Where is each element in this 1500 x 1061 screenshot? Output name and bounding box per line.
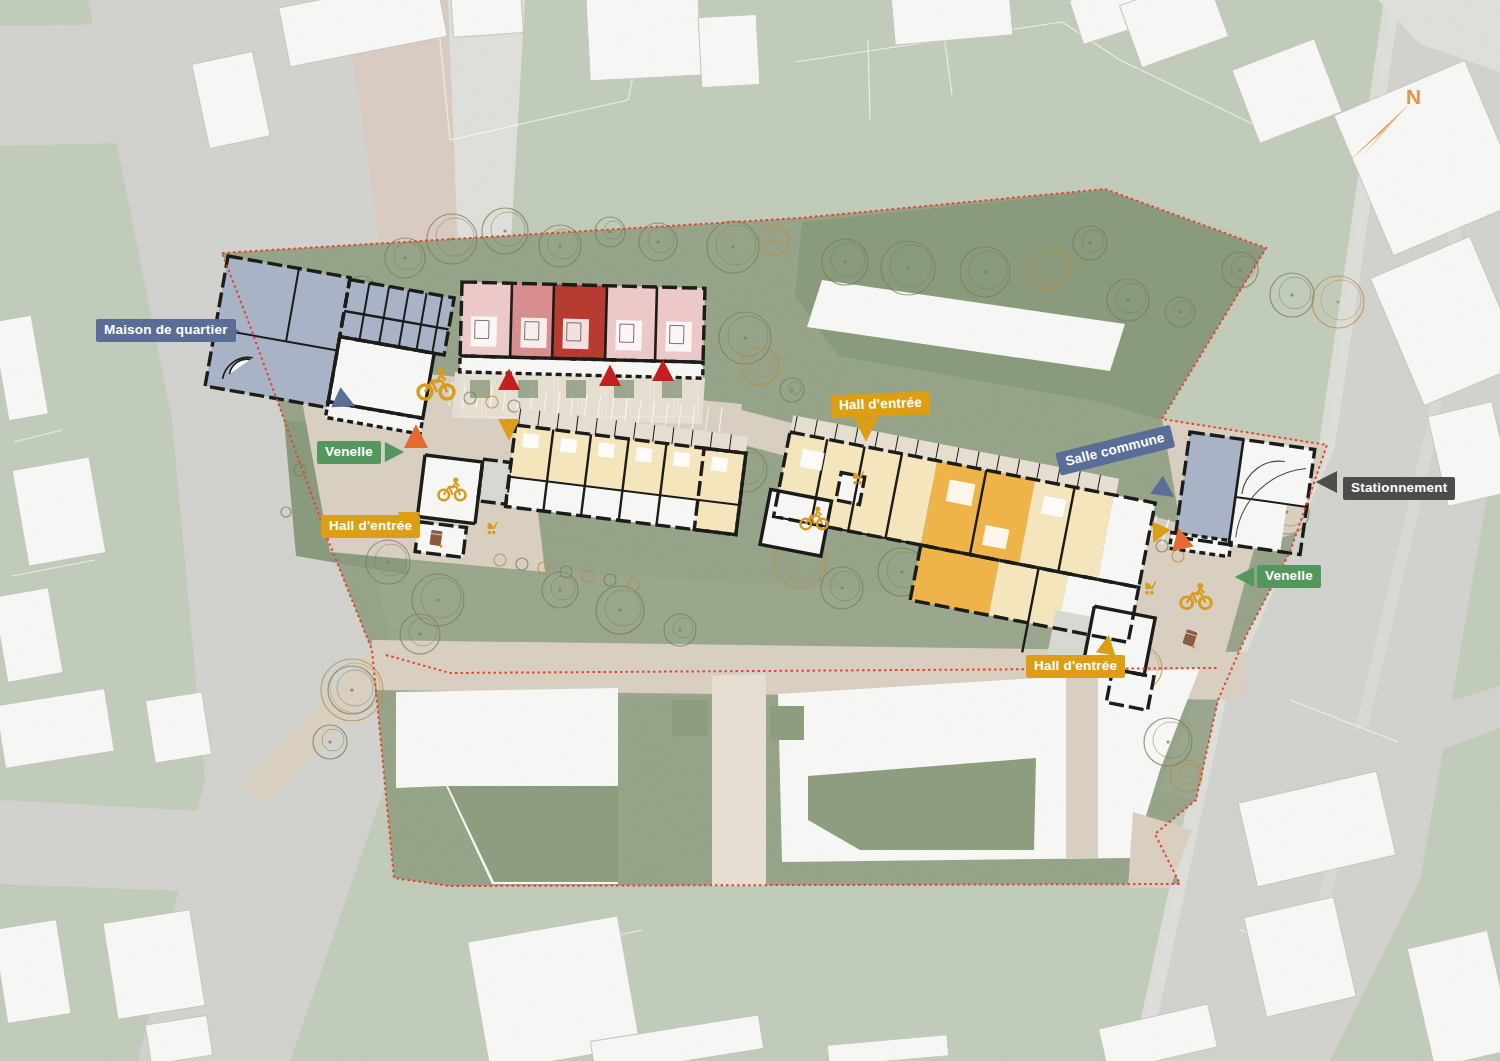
north-label: N [1406, 86, 1421, 107]
label-venelle-left: Venelle [317, 441, 381, 464]
label-hall-entree-left: Hall d'entrée [321, 515, 420, 538]
label-hall-entree-top: Hall d'entrée [831, 392, 931, 418]
label-hall-entree-bottom: Hall d'entrée [1026, 655, 1125, 678]
label-venelle-right: Venelle [1257, 565, 1321, 588]
label-stationnement: Stationnement [1343, 477, 1455, 500]
site-plan: Maison de quartier Venelle Hall d'entrée… [0, 0, 1500, 1061]
label-maison-de-quartier: Maison de quartier [96, 319, 236, 342]
paper-texture [0, 0, 1500, 1061]
site-plan-drawing [0, 0, 1500, 1061]
